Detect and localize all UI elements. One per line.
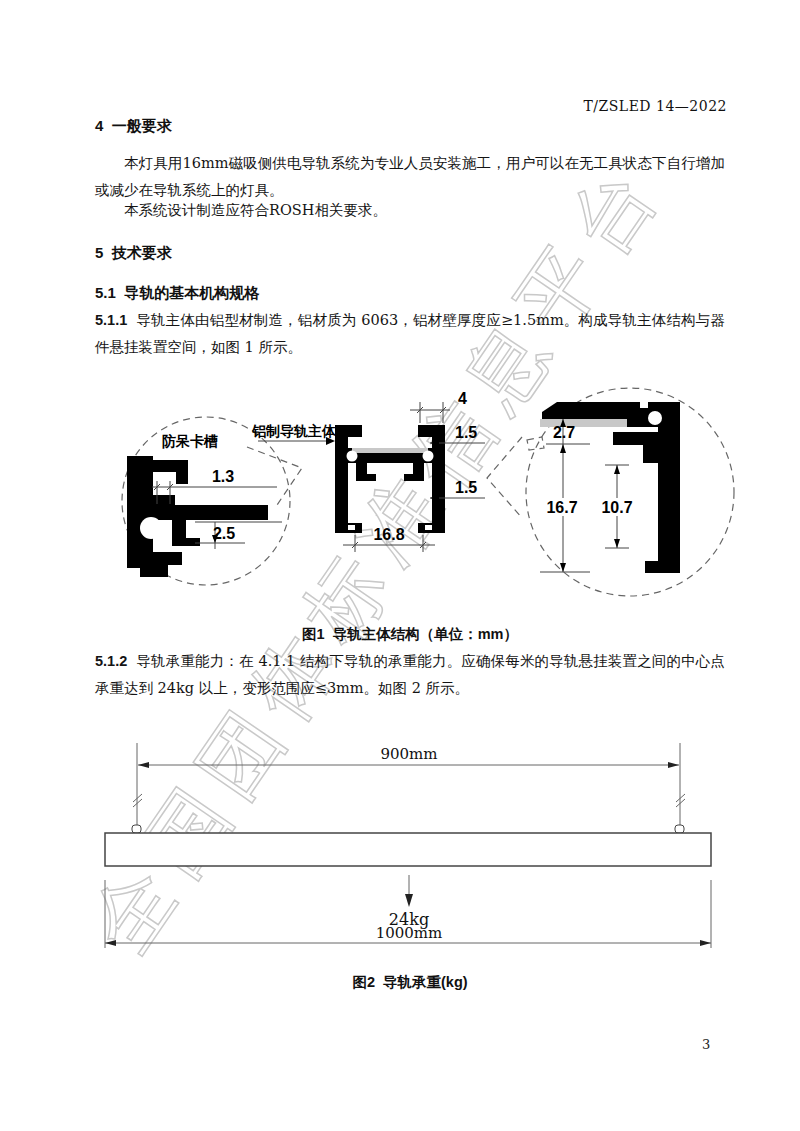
label-foolproof-slot: 防呆卡槽 (162, 433, 218, 449)
figure2-caption: 图2 导轨承重(kg) (95, 973, 725, 992)
dim-cavity-height: 16.7 (546, 499, 577, 516)
clause-5-1-2: 5.1.2导轨承重能力：在 4.1.1 结构下导轨的承重能力。应确保每米的导轨悬… (95, 648, 725, 702)
magnifier-leader-right (487, 437, 522, 518)
figure1-track-profile-drawing: 1.3 2.5 防呆卡槽 (90, 378, 750, 612)
section-4-paragraph-1: 本灯具用16mm磁吸侧供电导轨系统为专业人员安装施工，用户可以在无工具状态下自行… (95, 150, 725, 204)
section-4-paragraph-2: 本系统设计制造应符合ROSH相关要求。 (95, 197, 725, 224)
dim-slot-width: 1.3 (212, 468, 234, 485)
clause-5-1-1-text: 导轨主体由铝型材制造，铝材质为 6063，铝材壁厚度应≥1.5mm。构成导轨主体… (95, 312, 725, 355)
load-arrow-head (405, 894, 413, 907)
figure1-left-detail: 1.3 2.5 防呆卡槽 (122, 417, 302, 585)
dim-strip-thickness: 2.7 (553, 424, 575, 441)
left-hook (132, 825, 141, 833)
label-aluminum-track-body: 铝制导轨主体 (251, 423, 336, 439)
slot-profile-silhouette (127, 456, 268, 577)
dim-top-tab: 4 (458, 390, 467, 407)
clause-5-1-2-number: 5.1.2 (95, 653, 127, 669)
section-5-1-heading: 5.1 导轨的基本机构规格 (95, 284, 259, 303)
figure1-main-profile: 4 1.5 1.5 16.8 铝制导轨主体 (251, 390, 522, 552)
section-5-heading: 5 技术要求 (95, 244, 172, 263)
dim-inner-width: 16.8 (373, 526, 404, 543)
right-hook (675, 825, 684, 833)
dim-wall-top: 1.5 (455, 424, 477, 441)
clause-5-1-1-number: 5.1.1 (95, 312, 127, 328)
dim-slot-depth: 2.5 (213, 525, 235, 542)
dim-hook-height: 10.7 (601, 499, 632, 516)
profile-gray-strip (352, 448, 428, 453)
clause-5-1-2-text: 导轨承重能力：在 4.1.1 结构下导轨的承重能力。应确保每米的导轨悬挂装置之间… (95, 653, 725, 696)
figure2-load-diagram: 900mm 24kg 1000mm (90, 735, 745, 970)
section-4-heading: 4 一般要求 (95, 117, 172, 136)
dim-total-length: 1000mm (376, 924, 443, 942)
dim-suspension-span: 900mm (380, 745, 437, 763)
dashed-detail-shape (527, 437, 544, 450)
figure1-caption: 图1 导轨主体结构（单位：mm） (95, 625, 725, 644)
dim-wall-side: 1.5 (455, 479, 477, 496)
clause-5-1-1: 5.1.1导轨主体由铝型材制造，铝材质为 6063，铝材壁厚度应≥1.5mm。构… (95, 307, 725, 361)
track-profile-silhouette (335, 425, 445, 533)
document-code-header: T/ZSLED 14—2022 (583, 98, 727, 114)
page-number: 3 (702, 1037, 710, 1052)
track-beam (105, 833, 711, 866)
figure1-right-detail: 2.7 16.7 10.7 (526, 388, 734, 596)
slot-round-notch (140, 517, 162, 539)
magnifier-leader-left (247, 447, 302, 508)
